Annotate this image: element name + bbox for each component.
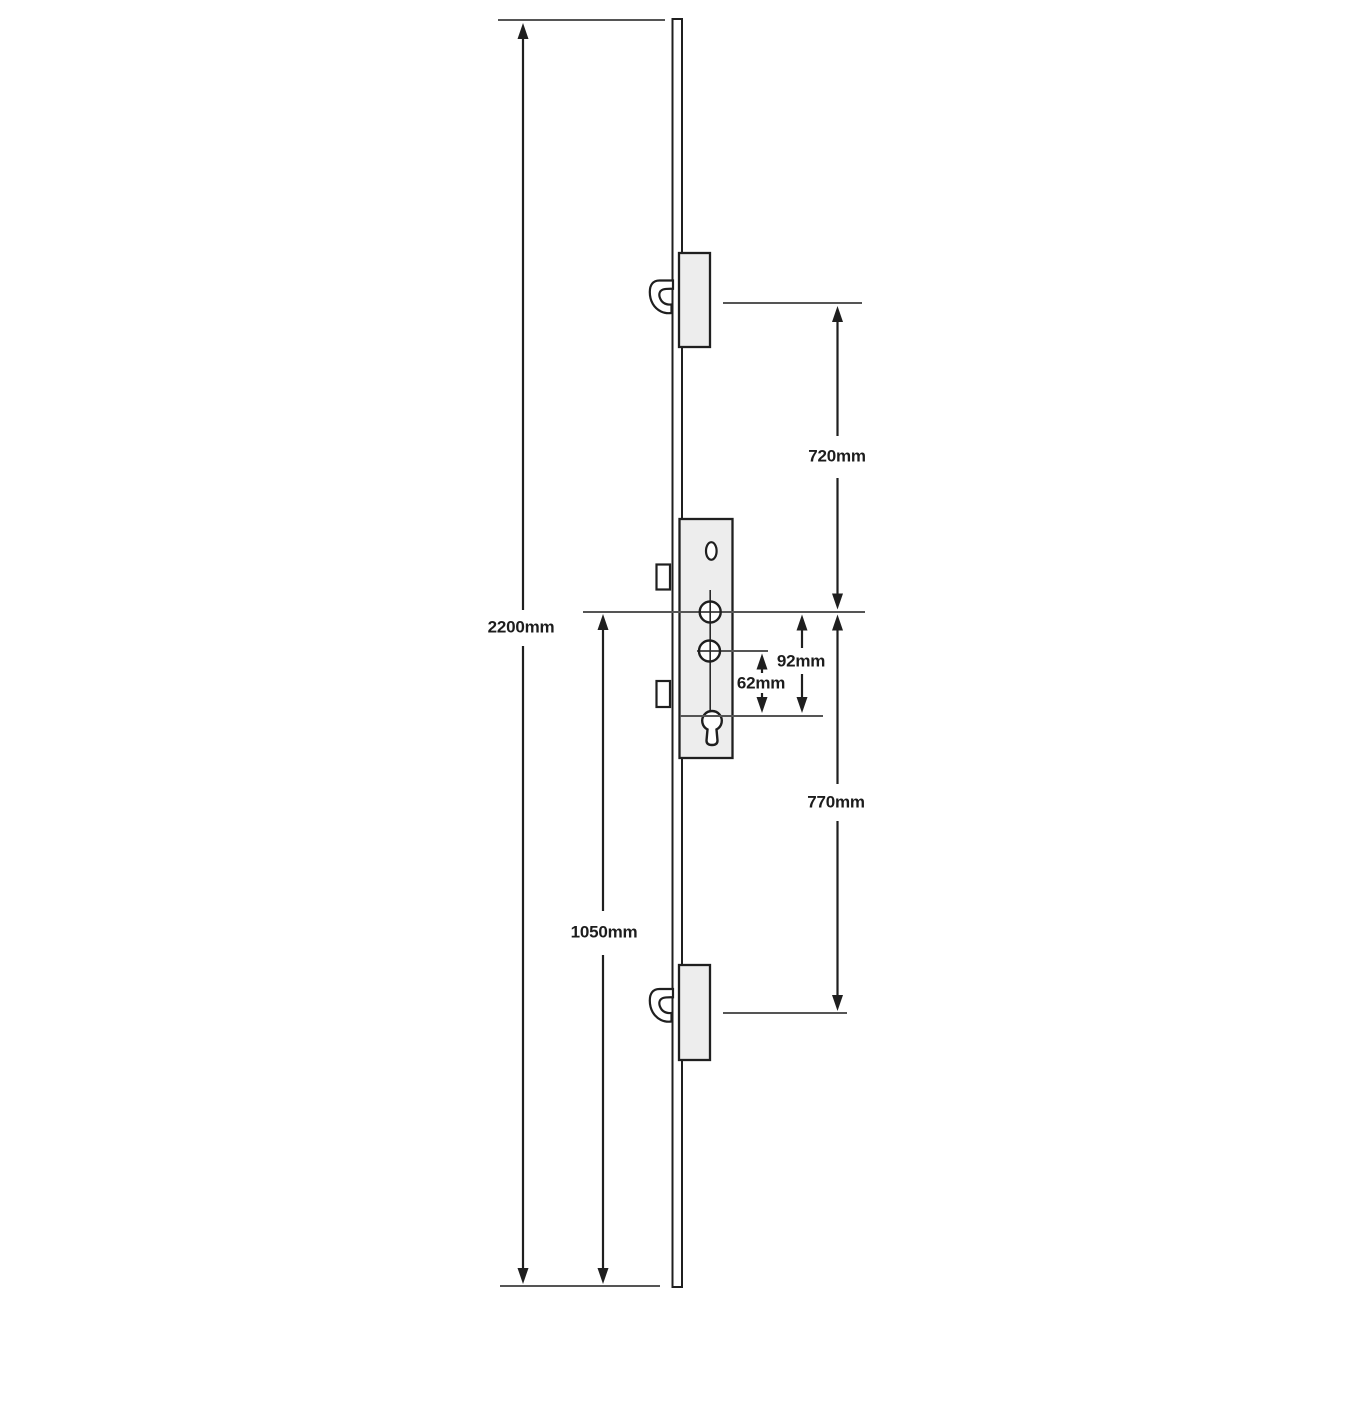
arrowhead-down-1050 (598, 1268, 609, 1284)
bottom-hook-housing (679, 965, 710, 1060)
dimension-label-top-hook-to-centre: 720mm (806, 448, 868, 465)
lock-dimension-diagram: 2200mm 720mm 1050mm 770mm 92mm 62mm (0, 0, 1356, 1404)
dimension-label-centre-to-bottom: 1050mm (569, 924, 640, 941)
dimension-label-total-height: 2200mm (486, 619, 557, 636)
arrowhead-down-770 (832, 995, 843, 1011)
arrowhead-down-62 (757, 697, 768, 713)
lower-roller-cam (657, 681, 671, 707)
top-hook-housing (679, 253, 710, 347)
upper-roller-cam (657, 565, 671, 590)
dimension-label-centre-to-cylinder: 92mm (775, 653, 827, 670)
bottom-hook-bolt (650, 989, 673, 1022)
top-hook-bolt (650, 281, 673, 314)
dimension-label-handle-to-cylinder: 62mm (735, 675, 787, 692)
dimension-label-centre-to-bottom-hook: 770mm (805, 794, 867, 811)
arrowhead-down-92 (797, 697, 808, 713)
dimension-drawing-svg (0, 0, 1356, 1404)
arrowhead-down-720 (832, 594, 843, 610)
arrowhead-down-2200 (518, 1268, 529, 1284)
follower-slot (706, 542, 717, 560)
